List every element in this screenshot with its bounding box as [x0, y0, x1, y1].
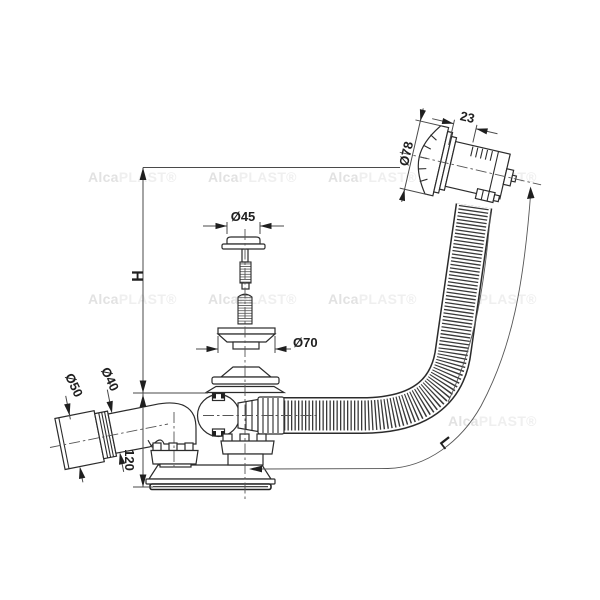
cover-flange: [218, 328, 275, 349]
dimension-arrow: [140, 475, 147, 488]
cover-crown: [218, 334, 275, 342]
locknut-tooth: [185, 443, 193, 451]
flange-plate: [212, 377, 279, 384]
dimension-arrow: [417, 109, 426, 122]
locknut-tooth: [169, 443, 177, 451]
screw-tip: [242, 283, 249, 289]
watermark-text: [88, 291, 177, 307]
clip-top: [213, 394, 225, 401]
technical-drawing-bath-waste-overflow: AlcaPLAST®: [0, 0, 600, 600]
dimension-label: Ø50: [62, 371, 86, 400]
dimension-arrow: [216, 223, 228, 229]
drain-flange-gasket: [212, 367, 279, 384]
locknut-tooth: [240, 434, 249, 442]
locknut-tooth: [257, 434, 266, 442]
flexible-hose: [284, 206, 491, 416]
drain-locknut: [221, 434, 274, 465]
watermark-text: [328, 169, 417, 185]
clip-mark: [213, 394, 217, 399]
plug-screw: [240, 249, 251, 289]
dimension-arrow: [442, 118, 455, 127]
drawing-canvas: AlcaPLAST®: [0, 0, 600, 600]
dimension-arrow: [475, 126, 488, 135]
plug-dome: [227, 237, 260, 244]
watermark-text: [208, 291, 297, 307]
elbow-locknut: [151, 443, 198, 467]
dimension-arrow: [140, 381, 147, 394]
dimension-plug-diameter: Ø45: [203, 209, 284, 234]
clip-mark: [221, 394, 225, 399]
dimension-arrow: [207, 346, 219, 352]
dimension-label: Ø45: [231, 209, 256, 224]
dimension-arrow: [64, 403, 70, 415]
gasket-cone: [221, 367, 271, 377]
plug-flange: [222, 244, 265, 249]
dimension-label: 23: [459, 108, 476, 126]
locknut-body: [221, 441, 274, 454]
riser-cylinder: [228, 454, 263, 465]
locknut-body: [151, 451, 198, 465]
dimension-arrow: [260, 223, 272, 229]
dimension-arrow: [79, 467, 85, 479]
dimension-arrow: [399, 189, 408, 202]
locknut-tooth: [223, 434, 232, 442]
cover-inner: [233, 342, 259, 349]
pipe-and-elbow: [108, 403, 196, 453]
dimension-label: Ø40: [98, 365, 122, 394]
screw-thread: [240, 262, 251, 283]
watermark-text: [448, 413, 537, 429]
watermark-text: [328, 291, 417, 307]
clip-mark: [213, 431, 217, 436]
dimension-label: L: [436, 434, 456, 452]
dimension-arrow: [140, 395, 147, 408]
dimension-arrow: [275, 346, 287, 352]
dimension-label: Ø78: [396, 140, 416, 167]
elbow-riser: [160, 464, 191, 467]
clamp-screw: [493, 195, 499, 202]
dimension-label: 120: [122, 449, 137, 471]
watermark-text: AlcaPLAST®: [88, 169, 177, 185]
dimension-install-height: H: [128, 168, 400, 394]
watermark-text: [208, 169, 297, 185]
drain-plug: [222, 237, 265, 249]
dimension-arrow: [527, 187, 535, 200]
cover-brim: [218, 328, 275, 334]
locknut-tooth: [153, 443, 161, 451]
dimension-label: Ø70: [293, 335, 318, 350]
dimension-label: H: [128, 270, 145, 282]
